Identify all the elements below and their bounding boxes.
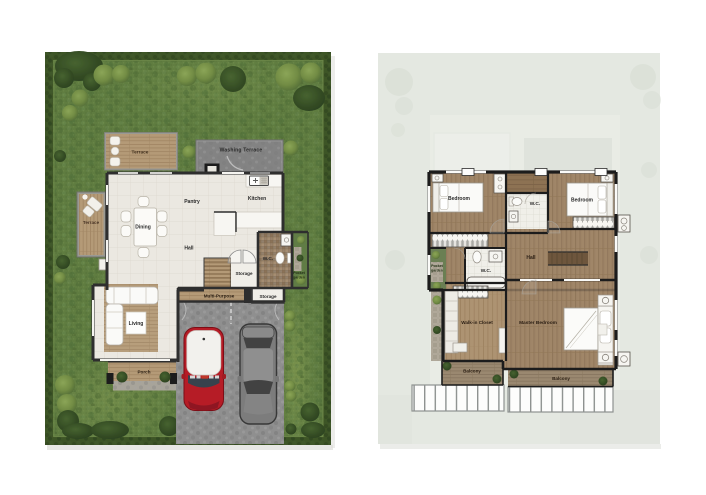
svg-text:Bedroom: Bedroom (571, 198, 594, 204)
svg-text:Washing Terrace: Washing Terrace (220, 148, 263, 154)
svg-text:Walk-in Closet: Walk-in Closet (461, 320, 493, 325)
svg-text:Bedroom: Bedroom (448, 196, 471, 202)
svg-text:W.C.: W.C. (530, 201, 540, 207)
svg-text:W.C.: W.C. (481, 268, 491, 274)
svg-text:Storage: Storage (235, 271, 253, 276)
svg-text:Terrace: Terrace (83, 220, 100, 225)
svg-text:Balcony: Balcony (552, 376, 570, 381)
svg-text:Hall: Hall (526, 255, 536, 261)
svg-text:Master Bedroom: Master Bedroom (519, 320, 557, 326)
svg-text:W.C.: W.C. (263, 256, 273, 262)
svg-text:Multi-Purpose: Multi-Purpose (204, 294, 235, 299)
svg-text:Pantry: Pantry (184, 199, 200, 205)
svg-text:Kitchen: Kitchen (248, 196, 266, 202)
svg-text:garden: garden (293, 276, 305, 280)
svg-text:Pocket: Pocket (293, 271, 306, 275)
svg-text:Pocket: Pocket (431, 264, 444, 268)
svg-text:Terrace: Terrace (132, 150, 149, 156)
svg-text:Dining: Dining (135, 225, 151, 231)
svg-text:Storage: Storage (259, 294, 277, 299)
svg-text:garden: garden (431, 269, 443, 273)
svg-text:Living: Living (129, 321, 144, 327)
svg-text:Balcony: Balcony (463, 369, 481, 374)
svg-text:Hall: Hall (184, 246, 194, 252)
svg-text:Porch: Porch (137, 370, 150, 375)
